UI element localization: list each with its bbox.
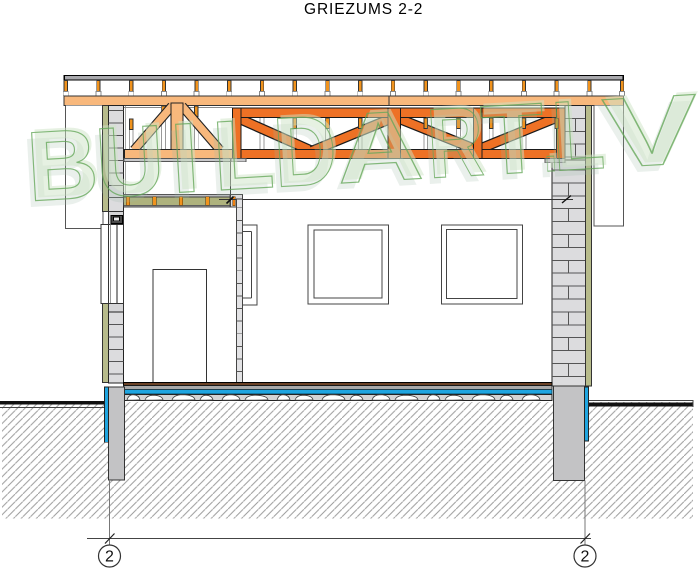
svg-text:A: A	[333, 88, 425, 204]
svg-text:V: V	[600, 73, 700, 189]
svg-text:2: 2	[581, 549, 590, 566]
svg-text:2: 2	[105, 549, 114, 566]
svg-text:U: U	[93, 103, 167, 218]
